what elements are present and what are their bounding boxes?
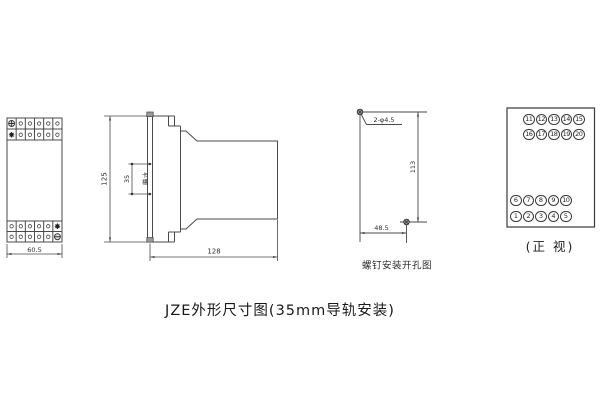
terminal-pin: 16: [523, 129, 535, 141]
terminal-pin: 12: [536, 114, 548, 126]
terminal-pin: 10: [560, 195, 572, 207]
terminal-row-6-10: 6 7 8 9 10: [510, 195, 572, 207]
drill-width-label: 48.5: [374, 225, 388, 232]
front-width-label: 60.5: [27, 247, 41, 254]
terminal-pin: 4: [548, 211, 560, 223]
terminal-pin: 9: [548, 195, 560, 207]
side-view-case-outline: [153, 116, 278, 242]
star-marker-icon: [55, 224, 60, 229]
drill-hole-icon: [404, 219, 410, 225]
terminal-pin: 6: [510, 195, 522, 207]
terminal-row-11-15: 11 12 13 14 15: [523, 114, 585, 126]
terminal-pin: 18: [548, 129, 560, 141]
terminal-pin: 11: [523, 114, 535, 126]
terminal-row-16-20: 16 17 18 19 20: [523, 129, 585, 141]
rail-slot-dim-label: 35: [123, 175, 130, 183]
terminal-view-caption: (正 视): [526, 241, 575, 254]
terminal-pin: 15: [573, 114, 585, 126]
front-view-drawing: [7, 118, 62, 258]
hole-spec-label: 2-φ4.5: [373, 116, 394, 123]
drill-view-drawing: [357, 109, 427, 243]
terminal-pin: 20: [573, 129, 585, 141]
terminal-pin: 13: [548, 114, 560, 126]
drill-height-label: 113: [409, 161, 416, 173]
rail-slot-name-label: 卡槽: [141, 172, 147, 186]
side-depth-label: 128: [207, 249, 220, 256]
terminal-pin: 2: [523, 211, 535, 223]
terminal-panel-outline: [507, 108, 595, 227]
side-height-label: 125: [102, 172, 109, 185]
drill-hole-icon: [357, 109, 363, 115]
star-marker-icon: [9, 132, 14, 137]
drill-height-dimension: [417, 112, 419, 222]
side-view-front-plate: [148, 116, 153, 242]
terminal-pin: 7: [523, 195, 535, 207]
terminal-pin: 1: [510, 211, 522, 223]
terminal-pin: 8: [535, 195, 547, 207]
terminal-pin: 3: [535, 211, 547, 223]
page-title: JZE外形尺寸图(35mm导轨安装): [165, 304, 395, 319]
terminal-pin: 5: [560, 211, 572, 223]
mounting-screw-icon: [9, 121, 15, 127]
drill-width-dimension: [360, 232, 407, 234]
mounting-screw-icon: [54, 234, 60, 240]
drill-view-caption: 螺钉安装开孔图: [362, 261, 432, 271]
terminal-row-1-5: 1 2 3 4 5: [510, 211, 572, 223]
terminal-pin: 14: [561, 114, 573, 126]
terminal-pin: 19: [561, 129, 573, 141]
side-view-drawing: [104, 112, 278, 261]
terminal-pin: 17: [536, 129, 548, 141]
dimension-drawing-page: 60.5 125 35 卡槽 128 2-φ4.5 113 48.5 螺钉安装开…: [0, 0, 600, 400]
